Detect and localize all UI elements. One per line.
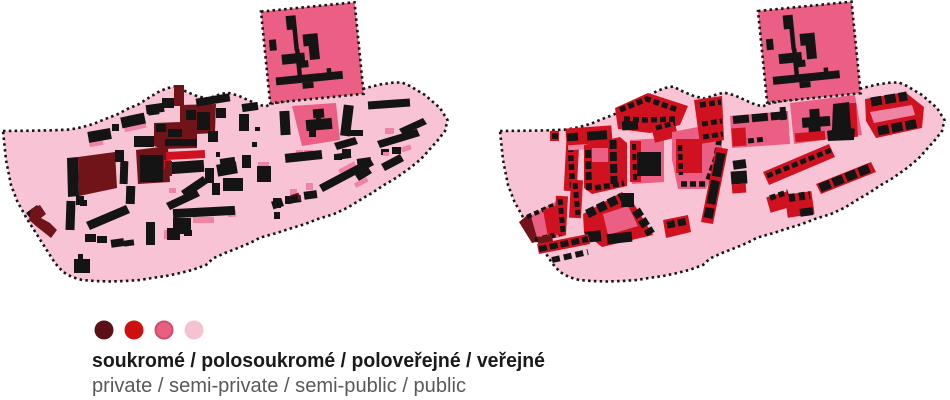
svg-text:soukromé / polosoukromé / polo: soukromé / polosoukromé / poloveřejné / …	[92, 350, 545, 372]
svg-text:private / semi-private / semi-: private / semi-private / semi-public / p…	[92, 375, 466, 397]
